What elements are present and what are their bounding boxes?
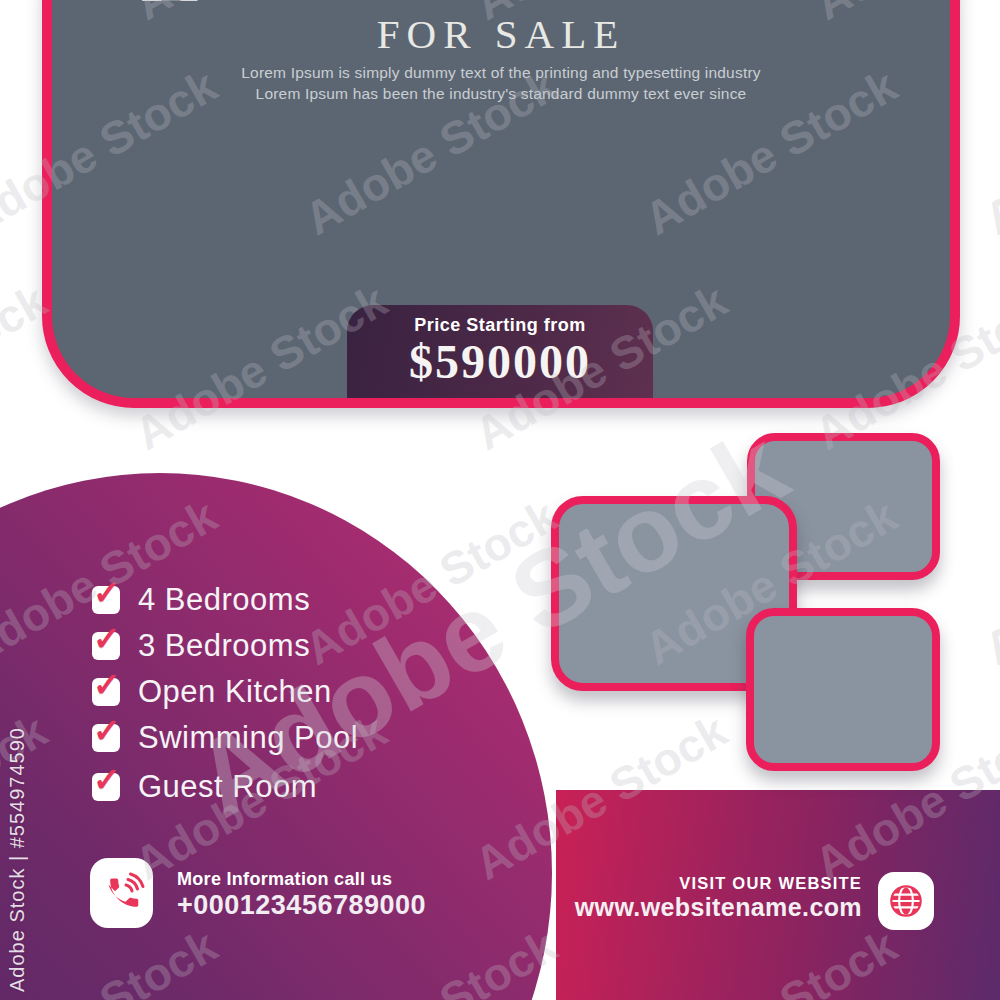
website-block: VISIT OUR WEBSITE www.websitename.com — [575, 874, 862, 922]
feature-row: ✓ Swimming Pool — [92, 720, 358, 756]
check-icon: ✓ — [93, 714, 121, 747]
description-line1: Lorem Ipsum is simply dummy text of the … — [52, 64, 950, 82]
check-icon: ✓ — [93, 668, 121, 701]
feature-label: Guest Room — [138, 769, 317, 805]
check-icon: ✓ — [93, 622, 121, 655]
feature-row: ✓ Open Kitchen — [92, 674, 332, 710]
page-title: ELEGANT HOME — [52, 0, 950, 7]
watermark-tile: Adobe Stock — [975, 488, 1000, 675]
website-band: VISIT OUR WEBSITE www.websitename.com — [556, 790, 1000, 1000]
check-icon: ✓ — [93, 576, 121, 609]
feature-row: ✓ 3 Bedrooms — [92, 628, 310, 664]
checkbox-icon: ✓ — [92, 586, 120, 614]
description-line2: Lorem Ipsum has been the industry's stan… — [52, 85, 950, 103]
watermark-tile: Adobe Stock — [975, 58, 1000, 245]
feature-label: 3 Bedrooms — [138, 628, 310, 664]
contact-number[interactable]: +000123456789000 — [177, 890, 426, 921]
feature-row: ✓ 4 Bedrooms — [92, 582, 310, 618]
phone-icon-box — [90, 858, 153, 928]
globe-icon — [884, 879, 928, 923]
feature-label: Open Kitchen — [138, 674, 332, 710]
feature-label: 4 Bedrooms — [138, 582, 310, 618]
phone-icon — [98, 869, 146, 917]
price-label: Price Starting from — [347, 315, 653, 336]
checkbox-icon: ✓ — [92, 773, 120, 801]
feature-label: Swimming Pool — [138, 720, 358, 756]
checkbox-icon: ✓ — [92, 632, 120, 660]
checkbox-icon: ✓ — [92, 724, 120, 752]
price-value: $590000 — [347, 336, 653, 388]
contact-text: More Information call us +00012345678900… — [177, 858, 426, 928]
website-label: VISIT OUR WEBSITE — [575, 874, 862, 893]
contact-label: More Information call us — [177, 869, 426, 890]
check-icon: ✓ — [93, 763, 121, 796]
photo-frame-bottom-right — [746, 608, 940, 771]
contact-block: More Information call us +00012345678900… — [90, 858, 426, 928]
page-subtitle: FOR SALE — [52, 10, 950, 58]
price-badge: Price Starting from $590000 — [347, 305, 653, 398]
feature-row: ✓ Guest Room — [92, 769, 317, 805]
globe-icon-box — [878, 872, 934, 930]
checkbox-icon: ✓ — [92, 678, 120, 706]
poster-canvas: LOGO HERE ELEGANT HOME FOR SALE Lorem Ip… — [0, 0, 1000, 1000]
website-url[interactable]: www.websitename.com — [575, 893, 862, 922]
